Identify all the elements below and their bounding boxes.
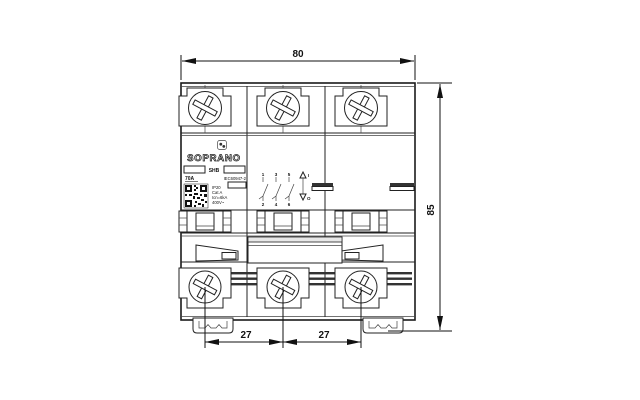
dim-pitch-right-label: 27 (318, 330, 330, 341)
top-terminal-3 (335, 88, 387, 126)
dim-width-label: 80 (292, 49, 304, 60)
top-terminal-1 (179, 88, 231, 126)
on-off-indicator-icon: I O (300, 172, 311, 201)
handle-recess-2 (257, 211, 309, 232)
model-code: SHB (209, 168, 220, 174)
terminal-number: 3 (275, 172, 278, 177)
certification-window (228, 182, 246, 188)
top-terminal-blocks (179, 85, 387, 133)
dim-pitch-left-label: 27 (240, 330, 252, 341)
on-label: I (308, 173, 309, 178)
handle-lever-right (341, 245, 383, 261)
handle-lever-left (196, 245, 238, 261)
breaker-drawing-svg: SOPRANO SHB 70A IP20 Cat A Icn=6kA 400V~ (0, 0, 640, 400)
standard-code: IEC60947-2 (224, 176, 247, 181)
brand-logo-icon (218, 141, 227, 150)
dim-height-label: 85 (426, 204, 437, 216)
terminal-number: 1 (262, 172, 265, 177)
terminal-number: 5 (288, 172, 291, 177)
label-window-right (224, 166, 245, 173)
handle-recess-3 (335, 211, 387, 232)
dimension-width: 80 (181, 49, 415, 80)
pole2-label-window (312, 183, 333, 191)
terminal-number: 2 (262, 202, 265, 207)
current-rating: 70A (185, 176, 195, 182)
pole3-label-window (390, 183, 414, 191)
din-clip-left (193, 318, 233, 333)
top-terminal-2 (257, 88, 309, 126)
qr-code-icon (184, 184, 208, 208)
central-handle (248, 237, 342, 263)
handle-recess-1 (179, 211, 231, 232)
off-label: O (307, 196, 311, 201)
toggle-handles (179, 211, 387, 263)
schematic-symbols: 1 2 3 4 5 6 I O (259, 172, 414, 207)
terminal-number: 4 (275, 202, 278, 207)
drawing-canvas: SOPRANO SHB 70A IP20 Cat A Icn=6kA 400V~ (0, 0, 640, 400)
terminal-number: 6 (288, 202, 291, 207)
spec-voltage: 400V~ (212, 200, 225, 205)
nameplate: SOPRANO SHB 70A IP20 Cat A Icn=6kA 400V~ (184, 141, 247, 209)
brand-name: SOPRANO (187, 153, 241, 164)
bottom-terminal-blocks (179, 268, 412, 308)
label-window-left (184, 166, 205, 173)
dimension-height: 85 (388, 83, 452, 331)
